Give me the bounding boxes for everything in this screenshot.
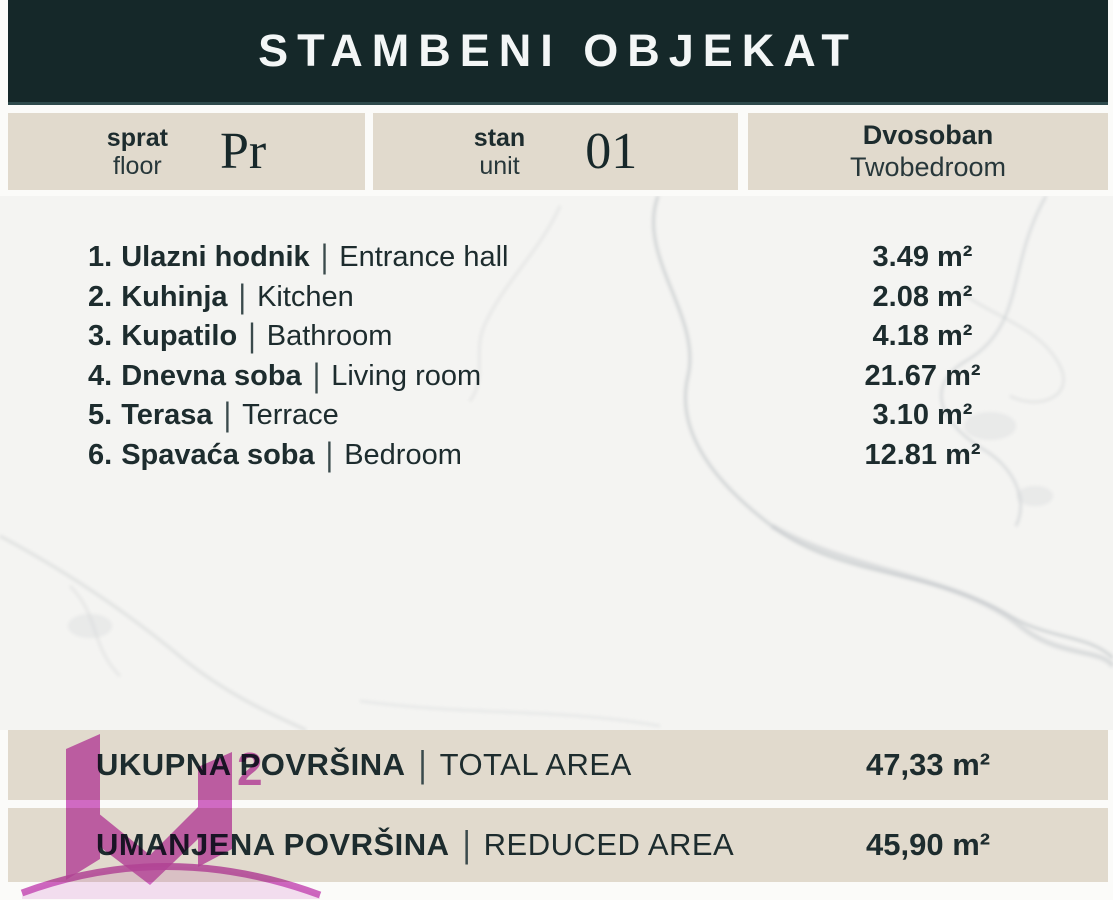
room-name-sr: Spavaća soba bbox=[121, 439, 314, 472]
unit-value: 01 bbox=[585, 126, 637, 178]
apartment-type-en: Twobedroom bbox=[850, 152, 1006, 183]
area-list: 3.49 m² 2.08 m² 4.18 m² 21.67 m² 3.10 m²… bbox=[820, 238, 1025, 475]
reduced-area-label-sr: UMANJENA POVRŠINA bbox=[96, 827, 450, 863]
room-area-4: 21.67 m² bbox=[820, 357, 1025, 397]
room-list: 1. Ulazni hodnik | Entrance hall 2. Kuhi… bbox=[88, 238, 509, 475]
room-number: 2. bbox=[88, 281, 112, 314]
separator: | bbox=[419, 743, 427, 786]
total-area-value: 47,33 m² bbox=[866, 747, 990, 783]
separator: | bbox=[248, 318, 256, 356]
reduced-area-value: 45,90 m² bbox=[866, 827, 990, 863]
room-row-2: 2. Kuhinja | Kitchen bbox=[88, 278, 509, 318]
room-name-en: Bedroom bbox=[344, 439, 462, 472]
room-number: 1. bbox=[88, 241, 112, 274]
apartment-type-label: Dvosoban Twobedroom bbox=[850, 120, 1006, 182]
room-name-en: Bathroom bbox=[267, 320, 393, 353]
separator: | bbox=[224, 397, 232, 435]
room-name-en: Entrance hall bbox=[339, 241, 508, 274]
separator: | bbox=[463, 823, 471, 866]
room-name-sr: Terasa bbox=[121, 399, 212, 432]
floor-label-en: floor bbox=[107, 152, 168, 180]
unit-box: stan unit 01 bbox=[373, 113, 738, 190]
total-area-row: UKUPNA POVRŠINA | TOTAL AREA 47,33 m² bbox=[8, 730, 1108, 800]
separator: | bbox=[321, 239, 329, 277]
apartment-info-card: STAMBENI OBJEKAT sprat floor Pr stan uni… bbox=[0, 0, 1113, 900]
apartment-type-box: Dvosoban Twobedroom bbox=[748, 113, 1108, 190]
page-title: STAMBENI OBJEKAT bbox=[258, 25, 858, 77]
separator: | bbox=[326, 436, 334, 474]
marble-panel: 1. Ulazni hodnik | Entrance hall 2. Kuhi… bbox=[0, 196, 1113, 730]
unit-label: stan unit bbox=[474, 124, 525, 180]
room-row-1: 1. Ulazni hodnik | Entrance hall bbox=[88, 238, 509, 278]
room-name-en: Terrace bbox=[242, 399, 339, 432]
room-name-en: Living room bbox=[331, 360, 481, 393]
reduced-area-label-en: REDUCED AREA bbox=[484, 827, 735, 863]
room-area-3: 4.18 m² bbox=[820, 317, 1025, 357]
floor-box: sprat floor Pr bbox=[8, 113, 365, 190]
room-row-4: 4. Dnevna soba | Living room bbox=[88, 357, 509, 397]
room-name-sr: Kuhinja bbox=[121, 281, 227, 314]
room-row-6: 6. Spavaća soba | Bedroom bbox=[88, 436, 509, 476]
room-area-2: 2.08 m² bbox=[820, 278, 1025, 318]
floor-value: Pr bbox=[220, 126, 266, 178]
reduced-area-label: UMANJENA POVRŠINA | REDUCED AREA bbox=[96, 827, 734, 863]
room-name-sr: Dnevna soba bbox=[121, 360, 302, 393]
floor-label-sr: sprat bbox=[107, 124, 168, 152]
room-row-3: 3. Kupatilo | Bathroom bbox=[88, 317, 509, 357]
header-bar: STAMBENI OBJEKAT bbox=[8, 0, 1108, 105]
room-name-en: Kitchen bbox=[257, 281, 354, 314]
room-number: 6. bbox=[88, 439, 112, 472]
unit-label-sr: stan bbox=[474, 124, 525, 152]
separator: | bbox=[239, 278, 247, 316]
room-name-sr: Kupatilo bbox=[121, 320, 237, 353]
apartment-type-sr: Dvosoban bbox=[850, 120, 1006, 151]
floor-label: sprat floor bbox=[107, 124, 168, 180]
room-row-5: 5. Terasa | Terrace bbox=[88, 396, 509, 436]
room-number: 3. bbox=[88, 320, 112, 353]
room-area-1: 3.49 m² bbox=[820, 238, 1025, 278]
room-number: 5. bbox=[88, 399, 112, 432]
room-area-6: 12.81 m² bbox=[820, 436, 1025, 476]
room-number: 4. bbox=[88, 360, 112, 393]
total-area-label: UKUPNA POVRŠINA | TOTAL AREA bbox=[96, 747, 632, 783]
reduced-area-row: UMANJENA POVRŠINA | REDUCED AREA 45,90 m… bbox=[8, 808, 1108, 882]
total-area-label-en: TOTAL AREA bbox=[440, 747, 632, 783]
unit-label-en: unit bbox=[474, 152, 525, 180]
total-area-label-sr: UKUPNA POVRŠINA bbox=[96, 747, 406, 783]
room-name-sr: Ulazni hodnik bbox=[121, 241, 310, 274]
separator: | bbox=[313, 357, 321, 395]
room-area-5: 3.10 m² bbox=[820, 396, 1025, 436]
